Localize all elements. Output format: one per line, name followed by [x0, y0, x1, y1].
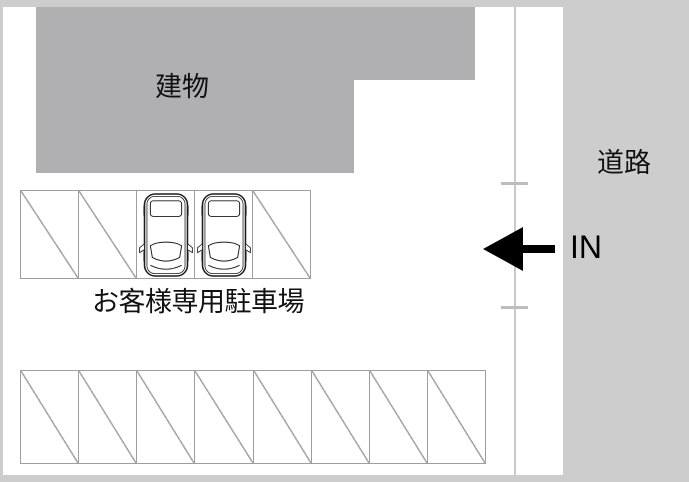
entrance-arrow-icon	[483, 227, 555, 272]
car-icon	[197, 193, 251, 277]
frame-border-bottom	[0, 475, 689, 482]
building-label: 建物	[155, 74, 209, 101]
frame-border-left	[0, 0, 3, 482]
parking-stall-empty	[79, 371, 137, 463]
parking-stall-empty	[195, 371, 253, 463]
parking-stall-empty	[21, 191, 79, 278]
parking-stall-empty	[137, 371, 195, 463]
parking-stall-empty	[79, 191, 137, 278]
parking-stall-empty	[253, 191, 310, 278]
parking-stall-empty	[21, 371, 79, 463]
parking-stall-occupied	[195, 191, 253, 278]
parking-stall-empty	[254, 371, 312, 463]
public-parking-row	[20, 370, 486, 464]
parking-stall-occupied	[137, 191, 195, 278]
parking-stall-empty	[312, 371, 370, 463]
customer-parking-row	[20, 190, 311, 279]
parking-stall-empty	[370, 371, 428, 463]
boundary-tick-mark	[501, 182, 528, 185]
car-icon	[139, 193, 193, 277]
boundary-tick-mark	[501, 306, 528, 309]
road-label: 道路	[597, 150, 651, 177]
parking-access-map: 道路 建物 IN お客様専用駐車場	[0, 0, 689, 482]
parking-stall-empty	[428, 371, 485, 463]
customer-parking-label: お客様専用駐車場	[92, 289, 304, 316]
building-shape	[36, 7, 475, 80]
entrance-in-label: IN	[570, 231, 602, 263]
